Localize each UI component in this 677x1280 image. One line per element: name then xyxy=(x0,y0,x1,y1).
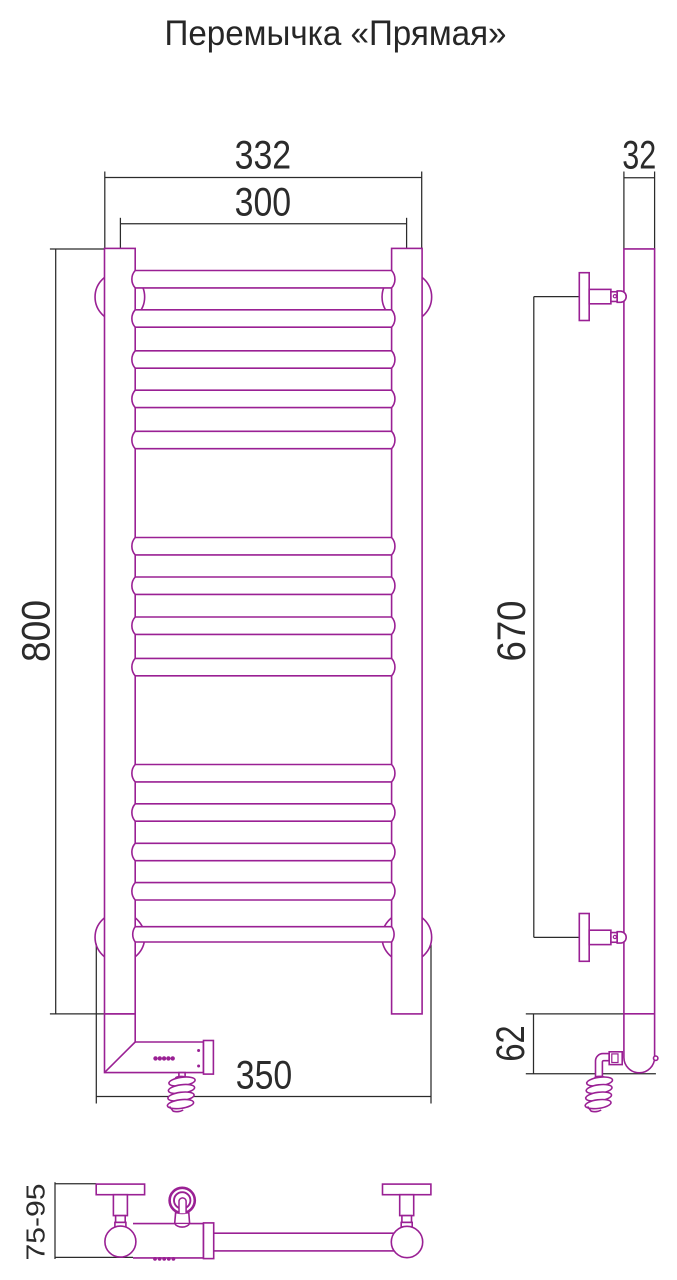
svg-text:32: 32 xyxy=(622,134,656,178)
svg-text:350: 350 xyxy=(236,1053,293,1097)
svg-text:300: 300 xyxy=(235,181,292,225)
svg-text:670: 670 xyxy=(490,601,534,662)
svg-text:Перемычка «Прямая»: Перемычка «Прямая» xyxy=(165,14,507,53)
svg-text:800: 800 xyxy=(14,600,58,662)
svg-text:62: 62 xyxy=(489,1025,533,1061)
svg-text:332: 332 xyxy=(235,133,292,177)
svg-text:75-95: 75-95 xyxy=(21,1184,51,1261)
